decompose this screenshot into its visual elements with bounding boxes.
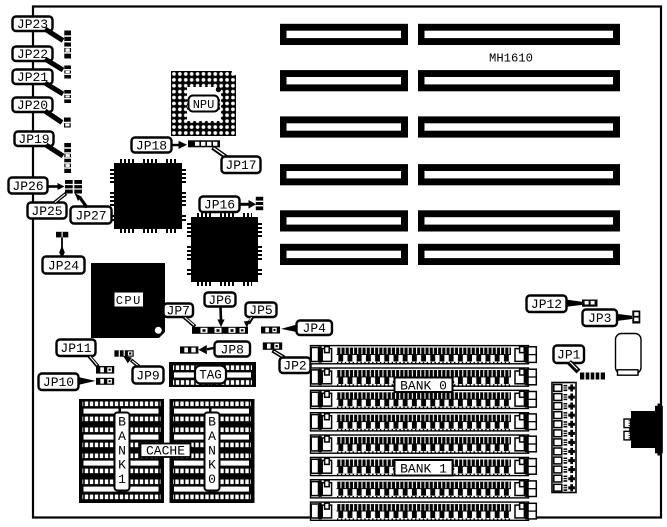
svg-text:JP24: JP24: [48, 258, 79, 273]
svg-text:JP9: JP9: [136, 368, 159, 383]
svg-text:JP26: JP26: [12, 179, 43, 194]
svg-text:MH1610: MH1610: [489, 52, 533, 66]
svg-text:JP10: JP10: [43, 375, 74, 390]
svg-text:K: K: [118, 458, 126, 473]
svg-text:NPU: NPU: [193, 98, 215, 112]
svg-text:JP16: JP16: [204, 198, 235, 213]
svg-text:JP1: JP1: [557, 348, 581, 363]
svg-text:0: 0: [208, 472, 216, 487]
svg-text:JP19: JP19: [18, 132, 49, 147]
svg-text:CACHE: CACHE: [146, 444, 185, 459]
svg-text:JP17: JP17: [225, 158, 256, 173]
svg-text:JP27: JP27: [75, 208, 106, 223]
svg-text:JP18: JP18: [136, 138, 167, 153]
svg-text:CPU: CPU: [116, 294, 142, 308]
svg-text:JP21: JP21: [17, 70, 48, 85]
svg-text:JP23: JP23: [17, 17, 48, 32]
svg-text:JP20: JP20: [17, 98, 48, 113]
svg-text:JP22: JP22: [17, 47, 48, 62]
svg-text:JP11: JP11: [60, 341, 91, 356]
svg-text:BANK 0: BANK 0: [400, 378, 447, 393]
svg-text:A: A: [118, 429, 126, 444]
svg-text:JP12: JP12: [531, 297, 562, 312]
svg-text:JP6: JP6: [208, 293, 231, 308]
svg-text:JP8: JP8: [221, 342, 244, 357]
svg-text:JP25: JP25: [31, 204, 62, 219]
svg-text:1: 1: [118, 472, 126, 487]
svg-text:N: N: [208, 443, 216, 458]
svg-text:JP7: JP7: [167, 304, 190, 319]
svg-text:K: K: [208, 458, 216, 473]
svg-text:JP2: JP2: [283, 359, 306, 374]
svg-text:BANK 1: BANK 1: [400, 461, 447, 476]
svg-text:JP3: JP3: [588, 311, 611, 326]
svg-text:B: B: [118, 415, 126, 430]
svg-text:A: A: [208, 429, 216, 444]
svg-text:JP5: JP5: [249, 303, 272, 318]
svg-text:B: B: [208, 415, 216, 430]
svg-text:JP4: JP4: [303, 321, 327, 336]
svg-text:N: N: [118, 443, 126, 458]
svg-text:TAG: TAG: [199, 369, 222, 383]
